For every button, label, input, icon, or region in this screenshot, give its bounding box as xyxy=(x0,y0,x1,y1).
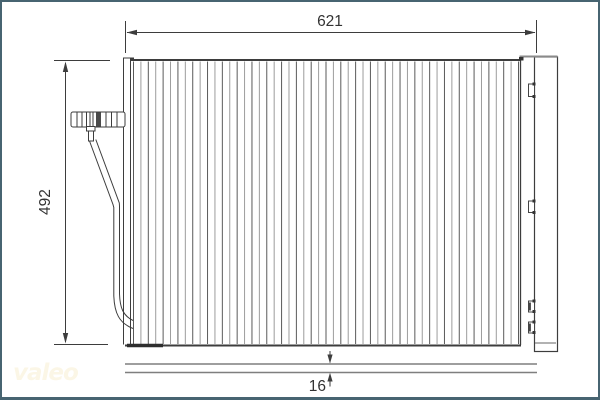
arrowhead-down-icon xyxy=(63,333,68,344)
arrowhead-left-icon xyxy=(127,30,138,35)
fitting-dark-band xyxy=(96,113,101,127)
mounting-clip-1 xyxy=(529,83,536,99)
left-side-plate xyxy=(124,58,131,345)
arrowhead-right-icon xyxy=(525,30,536,35)
dim-depth-label: 16 xyxy=(309,378,326,395)
mounting-clip-3 xyxy=(529,300,536,314)
tank-top-step xyxy=(519,57,524,61)
pipe-outer-line xyxy=(90,141,134,329)
dimension-depth xyxy=(327,351,332,387)
arrowhead-down-icon xyxy=(327,355,332,364)
dim-height-label: 492 xyxy=(37,189,54,215)
mounting-clip-4 xyxy=(529,321,536,335)
tank-body xyxy=(535,57,558,352)
arrowhead-up-icon xyxy=(327,373,332,382)
condenser-core xyxy=(124,58,522,346)
fitting-stem xyxy=(89,131,94,141)
valeo-logo: valeo xyxy=(13,360,83,392)
dimension-height xyxy=(54,61,110,345)
dim-width-label: 621 xyxy=(317,13,343,30)
top-left-step xyxy=(131,58,135,62)
technical-drawing: 621 492 xyxy=(0,0,600,400)
fitting-stem-cap xyxy=(87,127,96,132)
pipe-inner-line xyxy=(96,140,133,321)
receiver-tank xyxy=(519,57,558,352)
arrowhead-up-icon xyxy=(63,62,68,73)
mounting-clip-2 xyxy=(529,200,536,215)
fin-lines xyxy=(134,62,519,345)
side-view-depth xyxy=(125,364,537,373)
